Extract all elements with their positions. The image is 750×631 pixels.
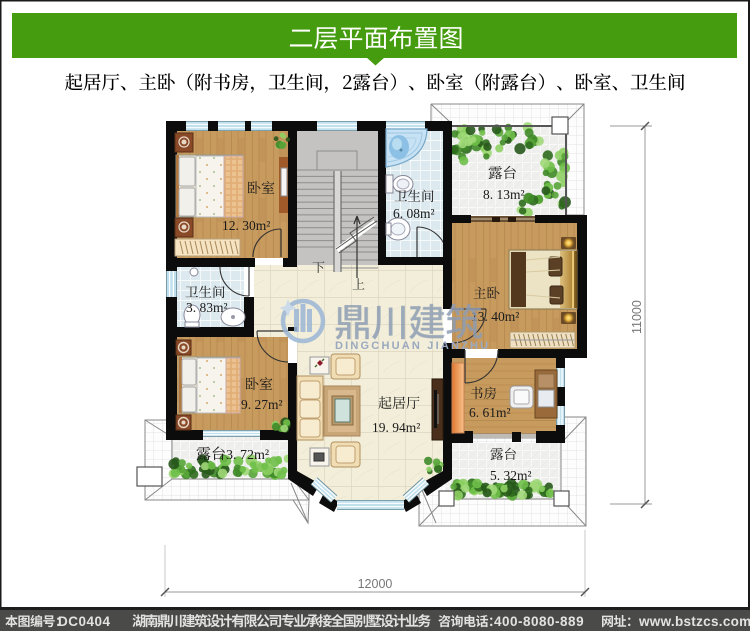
svg-text:5. 32m²: 5. 32m² xyxy=(490,468,532,483)
svg-text:3. 72m²: 3. 72m² xyxy=(226,448,269,463)
svg-text:9. 27m²: 9. 27m² xyxy=(241,397,283,412)
svg-text:6. 61m²: 6. 61m² xyxy=(469,405,511,420)
svg-text:6. 08m²: 6. 08m² xyxy=(393,206,435,221)
svg-text:12000: 12000 xyxy=(358,577,393,591)
svg-text:400-8080-889: 400-8080-889 xyxy=(494,614,584,629)
svg-text:3. 83m²: 3. 83m² xyxy=(186,300,228,315)
svg-text:8. 13m²: 8. 13m² xyxy=(483,187,525,202)
svg-text:www.bstzcs.com: www.bstzcs.com xyxy=(638,614,750,629)
svg-text:13. 40m²: 13. 40m² xyxy=(471,309,519,324)
svg-text:19. 94m²: 19. 94m² xyxy=(372,420,420,435)
svg-text:DINGCHUAN JIANZHU: DINGCHUAN JIANZHU xyxy=(335,340,490,352)
svg-text:DC0404: DC0404 xyxy=(58,614,111,629)
svg-text:12. 30m²: 12. 30m² xyxy=(222,218,270,233)
svg-text:11000: 11000 xyxy=(630,300,644,334)
